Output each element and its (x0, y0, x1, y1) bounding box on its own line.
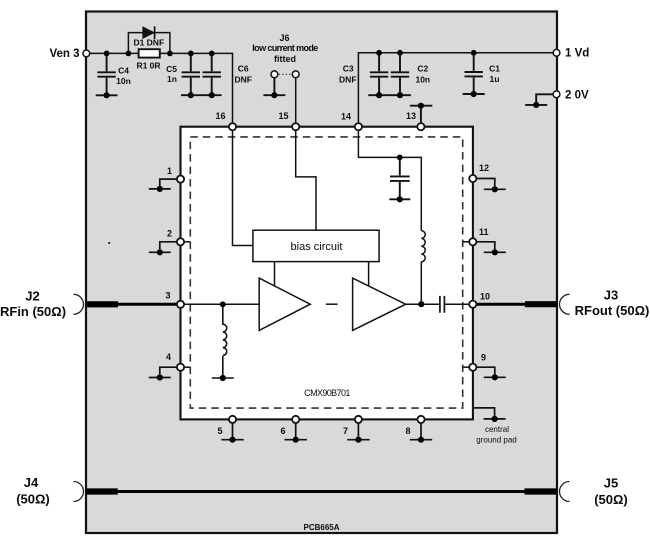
svg-text:4: 4 (166, 352, 171, 362)
svg-text:bias circuit: bias circuit (291, 241, 343, 253)
svg-text:C6: C6 (238, 64, 249, 74)
svg-text:11: 11 (479, 227, 489, 237)
svg-text:14: 14 (341, 112, 351, 122)
svg-text:3: 3 (165, 291, 170, 301)
svg-text:9: 9 (481, 353, 486, 363)
svg-text:10: 10 (480, 292, 490, 302)
svg-text:RFout (50Ω): RFout (50Ω) (575, 303, 650, 318)
svg-text:13: 13 (406, 111, 416, 121)
svg-text:J2: J2 (25, 288, 39, 303)
svg-text:C5: C5 (166, 64, 177, 74)
svg-text:6: 6 (280, 426, 285, 436)
svg-text:DNF: DNF (339, 75, 356, 85)
svg-text:10n: 10n (116, 76, 131, 86)
svg-text:(50Ω): (50Ω) (594, 492, 628, 507)
svg-text:7: 7 (343, 426, 348, 436)
svg-text:10n: 10n (415, 75, 430, 85)
svg-text:DNF: DNF (234, 75, 251, 85)
svg-text:(50Ω): (50Ω) (16, 492, 50, 507)
svg-text:fitted: fitted (274, 54, 296, 64)
svg-text:C3: C3 (343, 64, 354, 74)
svg-text:RFin (50Ω): RFin (50Ω) (0, 304, 66, 319)
svg-text:J4: J4 (24, 475, 39, 490)
svg-text:1 Vd: 1 Vd (565, 48, 589, 60)
svg-text:ground pad: ground pad (476, 436, 516, 445)
svg-text:16: 16 (215, 111, 225, 121)
svg-text:C1: C1 (489, 64, 500, 74)
svg-text:1u: 1u (490, 74, 500, 84)
svg-text:12: 12 (479, 163, 489, 173)
svg-text:J5: J5 (604, 476, 618, 491)
svg-text:R1 0R: R1 0R (136, 61, 160, 71)
svg-text:J3: J3 (604, 287, 618, 302)
svg-text:C2: C2 (417, 64, 428, 74)
svg-text:2 0V: 2 0V (565, 90, 589, 102)
svg-text:C4: C4 (118, 66, 129, 76)
svg-text:Ven 3: Ven 3 (49, 48, 79, 60)
svg-text:low current mode: low current mode (252, 43, 318, 53)
svg-text:2: 2 (167, 229, 172, 239)
svg-text:J6: J6 (279, 33, 289, 43)
svg-text:CMX90B701: CMX90B701 (304, 388, 350, 398)
svg-text:central: central (485, 425, 509, 434)
svg-text:1: 1 (167, 166, 172, 176)
svg-text:5: 5 (217, 426, 222, 436)
svg-text:PCB665A: PCB665A (303, 523, 339, 532)
svg-text:1n: 1n (167, 74, 177, 84)
svg-text:15: 15 (278, 111, 288, 121)
svg-text:D1 DNF: D1 DNF (133, 38, 164, 48)
svg-text:8: 8 (405, 426, 410, 436)
